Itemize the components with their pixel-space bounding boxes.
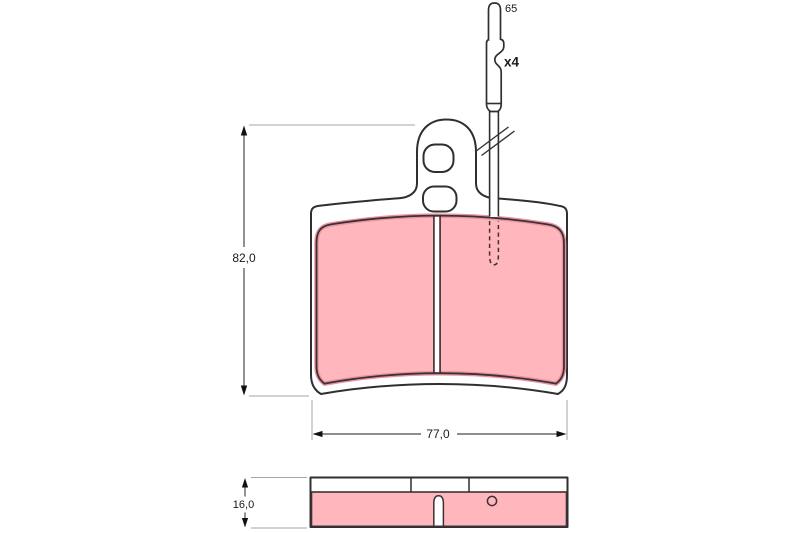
pin-rod-body bbox=[490, 109, 499, 217]
pin-quantity-label: x4 bbox=[504, 55, 520, 70]
wear-slot-gap bbox=[435, 217, 439, 372]
front-view: 65 x4 82,0 77,0 bbox=[232, 3, 567, 441]
pin-length-label: 65 bbox=[505, 3, 517, 15]
thickness-arrow-top bbox=[242, 478, 248, 488]
width-dimension-label: 77,0 bbox=[426, 427, 450, 441]
height-arrow-bottom bbox=[241, 386, 247, 396]
tab-hole-upper bbox=[424, 145, 454, 173]
side-view: 16,0 bbox=[233, 478, 568, 529]
thickness-dimension-label: 16,0 bbox=[233, 499, 254, 511]
dimension-width: 77,0 bbox=[312, 400, 567, 441]
thickness-arrow-bottom bbox=[242, 518, 248, 528]
height-arrow-top bbox=[241, 126, 247, 136]
tab-hole-lower bbox=[423, 187, 457, 212]
drawing-canvas: 65 x4 82,0 77,0 bbox=[0, 0, 800, 533]
pin-head bbox=[489, 3, 501, 40]
dimension-thickness: 16,0 bbox=[233, 478, 307, 529]
wear-slot bbox=[434, 216, 440, 372]
width-arrow-right bbox=[557, 431, 567, 437]
pin-collar bbox=[487, 39, 504, 111]
height-dimension-label: 82,0 bbox=[232, 251, 256, 265]
side-view-pin-hole bbox=[487, 496, 496, 505]
side-view-wear-slot bbox=[434, 496, 444, 526]
width-arrow-left bbox=[313, 431, 323, 437]
brake-pad-drawing: 65 x4 82,0 77,0 bbox=[0, 0, 800, 533]
